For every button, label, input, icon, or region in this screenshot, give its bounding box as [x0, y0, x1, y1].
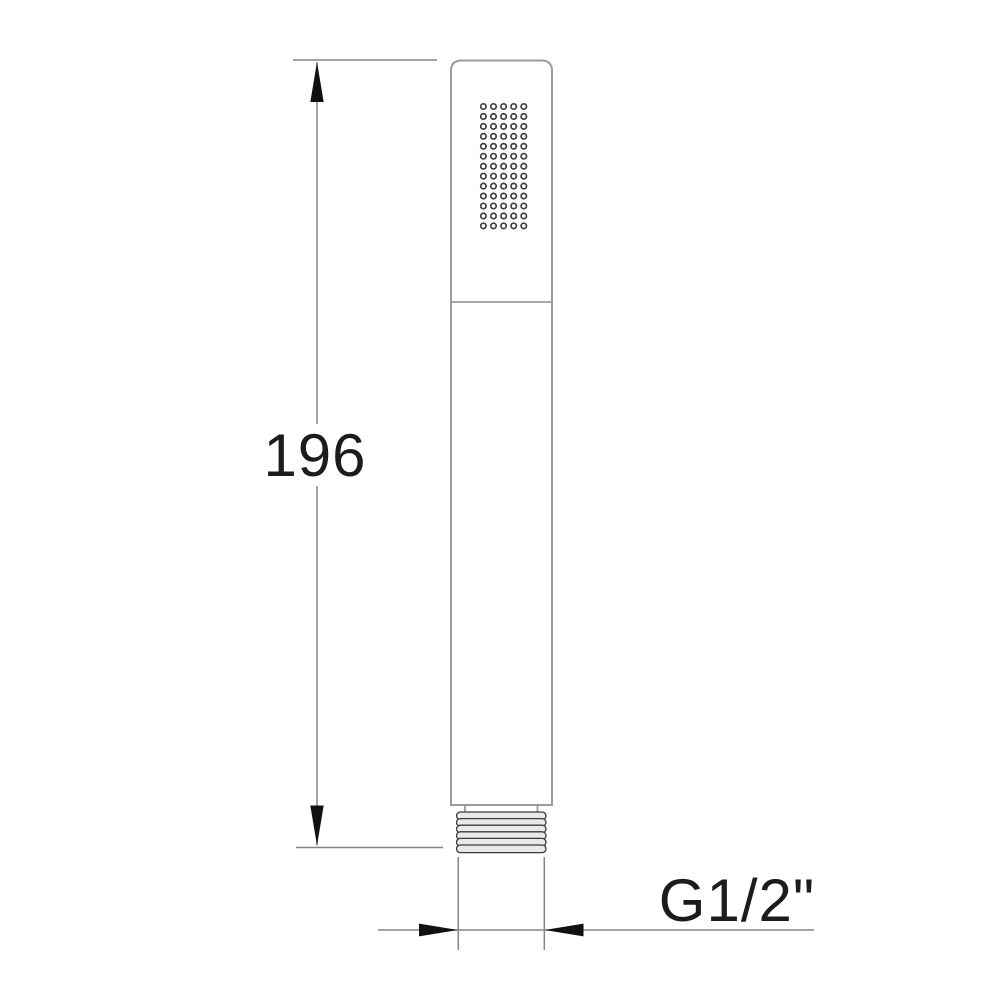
- spray-hole: [491, 164, 496, 169]
- spray-hole: [511, 144, 516, 149]
- spray-hole: [501, 183, 506, 188]
- arrowhead-down-icon: [310, 806, 323, 846]
- spray-hole: [521, 154, 526, 159]
- spray-hole: [511, 193, 516, 198]
- thread-ridge: [457, 845, 547, 853]
- spray-hole: [501, 164, 506, 169]
- spray-hole: [511, 134, 516, 139]
- spray-hole: [481, 104, 486, 109]
- spray-hole: [521, 173, 526, 178]
- spray-hole: [511, 203, 516, 208]
- thread-size-label: G1/2": [659, 867, 815, 934]
- thread-connector: [457, 812, 547, 853]
- spray-hole: [481, 124, 486, 129]
- spray-hole: [521, 114, 526, 119]
- thread-dimension: G1/2": [378, 857, 815, 950]
- spray-hole: [481, 164, 486, 169]
- spray-hole: [491, 193, 496, 198]
- spray-hole: [481, 173, 486, 178]
- spray-hole: [511, 114, 516, 119]
- spray-hole: [491, 183, 496, 188]
- spray-hole: [521, 144, 526, 149]
- spray-hole: [521, 193, 526, 198]
- spray-hole: [521, 124, 526, 129]
- spray-hole: [501, 173, 506, 178]
- spray-hole: [501, 104, 506, 109]
- spray-hole: [501, 134, 506, 139]
- spray-hole: [491, 144, 496, 149]
- arrowhead-left-icon: [545, 924, 584, 937]
- spray-hole: [481, 193, 486, 198]
- spray-hole: [501, 124, 506, 129]
- spray-hole: [481, 183, 486, 188]
- spray-hole: [491, 173, 496, 178]
- technical-drawing-canvas: 196 G1/2": [0, 0, 1000, 1000]
- spray-hole: [481, 203, 486, 208]
- hand-shower-drawing: 196 G1/2": [0, 0, 1000, 1000]
- spray-hole: [501, 154, 506, 159]
- spray-hole: [511, 164, 516, 169]
- spray-hole: [521, 164, 526, 169]
- spray-hole: [521, 134, 526, 139]
- length-value: 196: [263, 422, 366, 489]
- spray-hole: [521, 223, 526, 228]
- spray-hole: [501, 193, 506, 198]
- spray-hole: [491, 223, 496, 228]
- spray-hole: [491, 124, 496, 129]
- spray-hole: [491, 114, 496, 119]
- spray-hole: [511, 183, 516, 188]
- shower-body-outline: [451, 61, 552, 806]
- length-dimension: 196: [263, 60, 443, 848]
- spray-hole: [511, 124, 516, 129]
- spray-hole: [511, 223, 516, 228]
- spray-hole: [511, 213, 516, 218]
- arrowhead-right-icon: [419, 924, 458, 937]
- spray-hole: [481, 154, 486, 159]
- shower-body: [451, 61, 552, 853]
- spray-hole: [481, 213, 486, 218]
- spray-hole: [481, 114, 486, 119]
- spray-hole: [501, 144, 506, 149]
- spray-hole: [501, 223, 506, 228]
- spray-hole: [521, 213, 526, 218]
- spray-hole: [491, 203, 496, 208]
- spray-hole: [521, 183, 526, 188]
- spray-hole: [481, 144, 486, 149]
- spray-hole: [491, 213, 496, 218]
- spray-hole: [511, 104, 516, 109]
- spray-hole: [491, 134, 496, 139]
- arrowhead-up-icon: [310, 62, 323, 102]
- spray-hole: [481, 223, 486, 228]
- spray-hole: [501, 203, 506, 208]
- spray-hole: [491, 154, 496, 159]
- spray-hole: [501, 114, 506, 119]
- spray-hole: [511, 154, 516, 159]
- spray-hole: [501, 213, 506, 218]
- spray-hole: [511, 173, 516, 178]
- spray-hole: [521, 203, 526, 208]
- spray-hole: [491, 104, 496, 109]
- spray-hole: [521, 104, 526, 109]
- spray-hole: [481, 134, 486, 139]
